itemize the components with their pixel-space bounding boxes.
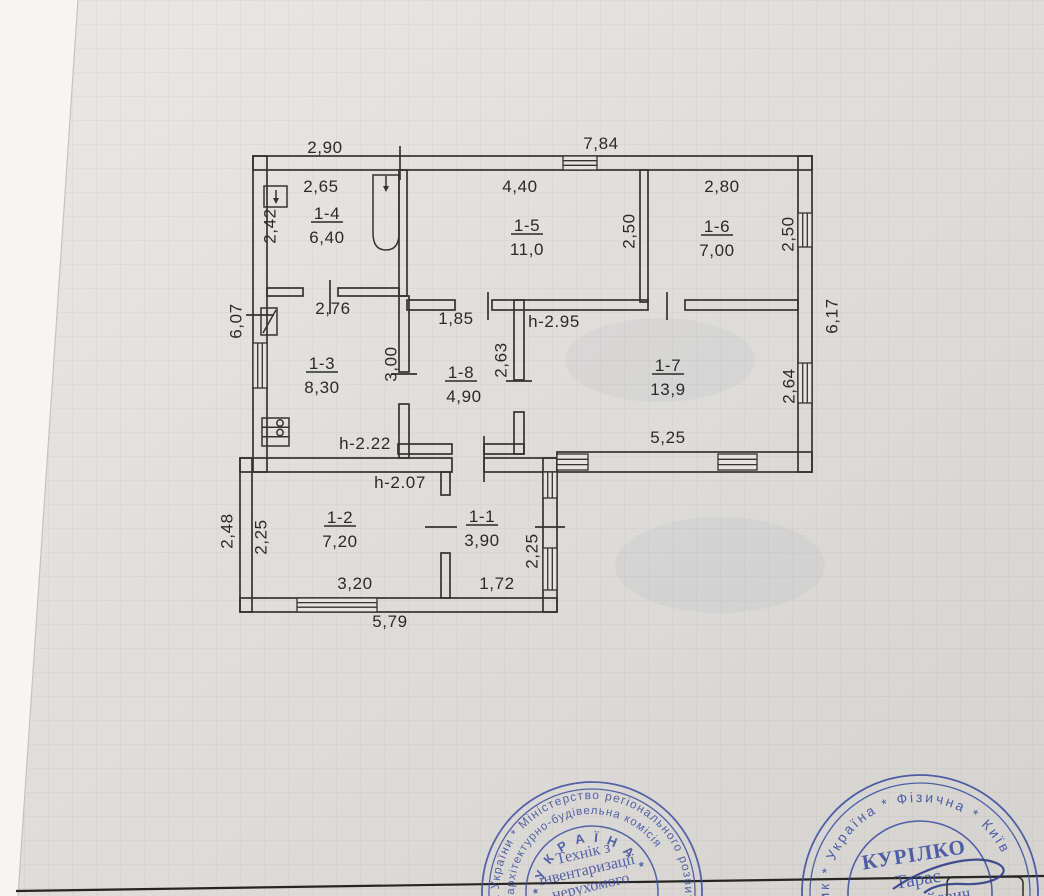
dim-annex-left: 2,48 bbox=[217, 513, 236, 549]
room-1-4-id: 1-4 bbox=[314, 204, 340, 223]
room-1-5-id: 1-5 bbox=[514, 216, 540, 235]
room-1-2-dim-left: 2,25 bbox=[251, 519, 270, 555]
room-1-3-id: 1-3 bbox=[309, 354, 335, 373]
room-1-5-dim-top: 4,40 bbox=[502, 177, 538, 196]
room-1-2-id: 1-2 bbox=[327, 508, 353, 527]
room-1-2-area: 7,20 bbox=[322, 532, 358, 551]
room-1-1-dim-right: 2,25 bbox=[522, 533, 541, 569]
room-1-7-dim-right: 2,64 bbox=[779, 368, 798, 404]
room-1-4-dim-left: 2,42 bbox=[260, 208, 279, 244]
dim-annex-bottom: 5,79 bbox=[372, 612, 408, 631]
room-1-7-dim-bottom: 5,25 bbox=[650, 428, 686, 447]
room-1-3-height: h-2.22 bbox=[339, 434, 391, 453]
room-1-3-dim-top: 2,76 bbox=[315, 299, 351, 318]
scanned-floor-plan-page: 2,90 7,84 6,07 6,17 2,48 5,79 2,65 2,42 … bbox=[0, 0, 1044, 896]
dim-top-left: 2,90 bbox=[307, 138, 343, 157]
dim-left: 6,07 bbox=[226, 303, 245, 339]
room-1-7-id: 1-7 bbox=[655, 356, 681, 375]
room-1-1-id: 1-1 bbox=[469, 507, 495, 526]
room-1-7-height: h-2.95 bbox=[528, 312, 580, 331]
room-1-8-dim-top: 1,85 bbox=[438, 309, 474, 328]
room-1-6-area: 7,00 bbox=[699, 241, 735, 260]
room-1-1-dim-bottom: 1,72 bbox=[479, 574, 515, 593]
room-1-5-area: 11,0 bbox=[510, 240, 544, 259]
hall-height: h-2.07 bbox=[374, 473, 426, 492]
dim-top-span: 7,84 bbox=[583, 134, 619, 153]
room-1-3-area: 8,30 bbox=[304, 378, 340, 397]
room-1-1-area: 3,90 bbox=[464, 531, 500, 550]
room-1-5-dim-right: 2,50 bbox=[619, 213, 638, 249]
room-1-6-id: 1-6 bbox=[704, 217, 730, 236]
room-1-4-dim-top: 2,65 bbox=[303, 177, 339, 196]
room-1-8-id: 1-8 bbox=[448, 363, 474, 382]
room-1-6-dim-right: 2,50 bbox=[778, 216, 797, 252]
dim-right: 6,17 bbox=[822, 298, 841, 334]
room-1-3-dim-right: 3,00 bbox=[381, 346, 400, 382]
chimney-vent-symbol bbox=[563, 156, 597, 170]
room-1-8-area: 4,90 bbox=[446, 387, 482, 406]
room-1-6-dim-top: 2,80 bbox=[704, 177, 740, 196]
paper-background bbox=[0, 0, 1044, 896]
room-1-7-area: 13,9 bbox=[650, 380, 686, 399]
room-1-8-dim-right: 2,63 bbox=[491, 342, 510, 378]
room-1-4-area: 6,40 bbox=[309, 228, 345, 247]
room-1-2-dim-bottom: 3,20 bbox=[337, 574, 373, 593]
floor-plan-drawing: 2,90 7,84 6,07 6,17 2,48 5,79 2,65 2,42 … bbox=[0, 0, 1044, 896]
